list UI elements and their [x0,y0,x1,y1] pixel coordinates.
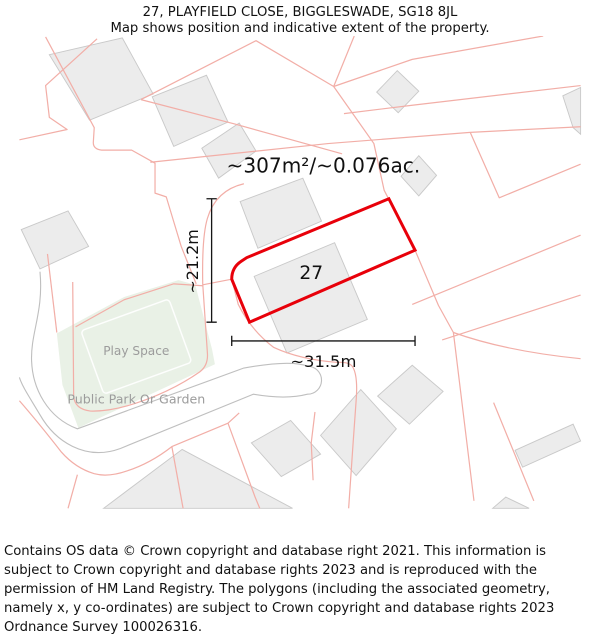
plot-number-label: 27 [299,263,323,284]
building [493,497,529,508]
property-address-title: 27, PLAYFIELD CLOSE, BIGGLESWADE, SG18 8… [0,5,600,21]
copyright-notice: Contains OS data © Crown copyright and d… [4,542,596,637]
map-description-subtitle: Map shows position and indicative extent… [0,21,600,37]
width-dimension-label: ~31.5m [290,352,356,371]
map-header: 27, PLAYFIELD CLOSE, BIGGLESWADE, SG18 8… [0,5,600,37]
building [240,178,321,248]
play-space-label: Play Space [103,344,169,358]
building-plot-27 [254,243,367,353]
property-map: ~21.2m ~31.5m ~307m²/~0.076ac. 27 Play S… [0,36,600,542]
building [251,420,320,476]
public-park-label: Public Park Or Garden [67,392,205,407]
height-dimension-label: ~21.2m [183,229,202,293]
building [377,71,419,113]
plot-area-label: ~307m²/~0.076ac. [227,154,421,178]
building [49,38,153,120]
building [378,365,443,424]
building [515,424,580,467]
building [21,211,88,269]
building [152,75,228,146]
building [104,449,293,508]
